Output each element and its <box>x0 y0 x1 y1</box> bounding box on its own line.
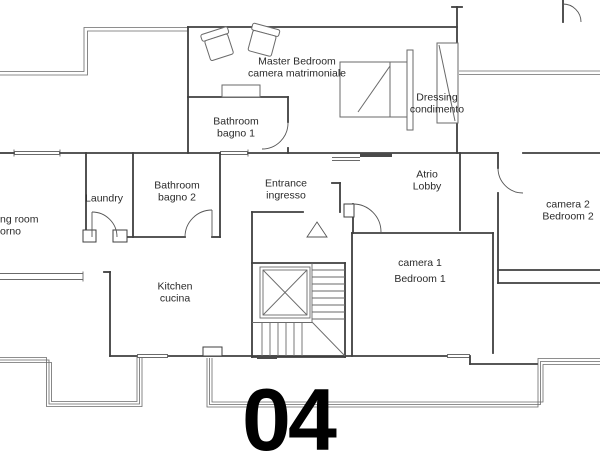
bed-icon <box>340 62 407 117</box>
room-label-atrio: Atrio Lobby <box>413 170 442 193</box>
room-name-en: Lobby <box>413 181 442 193</box>
armchair-icon <box>200 26 235 61</box>
room-name-it: bagno 1 <box>213 128 259 140</box>
room-label-laundry: Laundry <box>85 193 123 205</box>
room-label-camera-2: camera 2 Bedroom 2 <box>542 200 593 223</box>
room-name-en: Bedroom 2 <box>542 211 593 223</box>
room-name-it: camera 1 <box>394 255 445 271</box>
armchair-icon <box>246 23 280 57</box>
room-name-en: Entrance <box>265 179 307 191</box>
room-name-en: Laundry <box>85 193 123 205</box>
room-label-bathroom-1: Bathroom bagno 1 <box>213 117 259 140</box>
room-name-en: Dressing <box>410 93 464 105</box>
direction-triangle-icon <box>307 222 327 237</box>
room-label-camera-1: camera 1 Bedroom 1 <box>394 255 445 287</box>
room-label-bathroom-2: Bathroom bagno 2 <box>154 181 200 204</box>
floor-plan: Master Bedroom camera matrimoniale Dress… <box>0 0 600 460</box>
room-name-it: camera 2 <box>542 200 593 212</box>
windows <box>0 150 470 358</box>
room-label-dressing: Dressing condimento <box>410 93 464 116</box>
room-name-en: Bathroom <box>213 117 259 129</box>
stair-core <box>252 263 345 356</box>
dresser-icon <box>222 85 260 97</box>
room-name-en: Kitchen <box>157 282 192 294</box>
room-name-it: cucina <box>157 293 192 305</box>
unit-number: 04 <box>242 376 334 460</box>
room-name-it: ingresso <box>265 190 307 202</box>
room-name-it: orno <box>0 226 39 238</box>
room-label-master-bedroom: Master Bedroom camera matrimoniale <box>248 57 346 80</box>
wardrobe-panel-icon <box>407 50 413 130</box>
room-name-en: ng room <box>0 215 39 227</box>
room-name-it: bagno 2 <box>154 192 200 204</box>
room-name-en: Bedroom 1 <box>394 271 445 287</box>
room-name-en: Bathroom <box>154 181 200 193</box>
room-name-en: Master Bedroom <box>248 57 346 69</box>
room-name-it: condimento <box>410 104 464 116</box>
room-label-living-room: ng room orno <box>0 215 39 238</box>
room-name-it: Atrio <box>413 170 442 182</box>
room-label-kitchen: Kitchen cucina <box>157 282 192 305</box>
elevator-icon <box>260 267 310 318</box>
room-label-entrance: Entrance ingresso <box>265 179 307 202</box>
room-name-it: camera matrimoniale <box>248 68 346 80</box>
terrace-railings <box>0 28 600 408</box>
